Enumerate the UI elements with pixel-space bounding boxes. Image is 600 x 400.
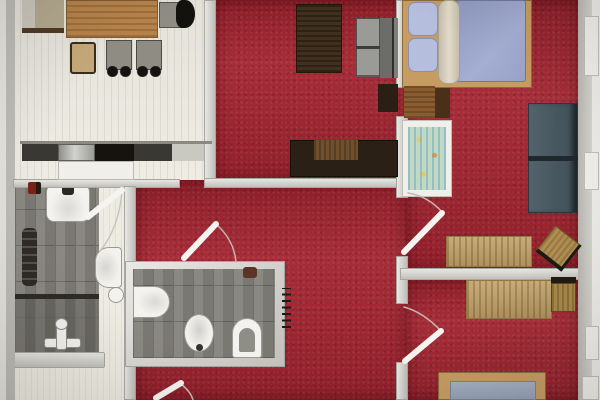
bedroom-main-door-leaf [404, 213, 442, 252]
bath1-door-leaf [88, 190, 122, 217]
entrance-door-leaf [156, 383, 181, 398]
bedroom-second-door-leaf [405, 331, 441, 361]
center-door-arc [216, 224, 236, 262]
center-door-leaf [184, 224, 216, 258]
entrance-door-arc [181, 384, 193, 400]
floor-plan [0, 0, 600, 400]
door-swings-layer [0, 0, 600, 400]
bedroom-second-door-arc [404, 307, 441, 331]
bedroom-main-door-arc [408, 193, 443, 213]
